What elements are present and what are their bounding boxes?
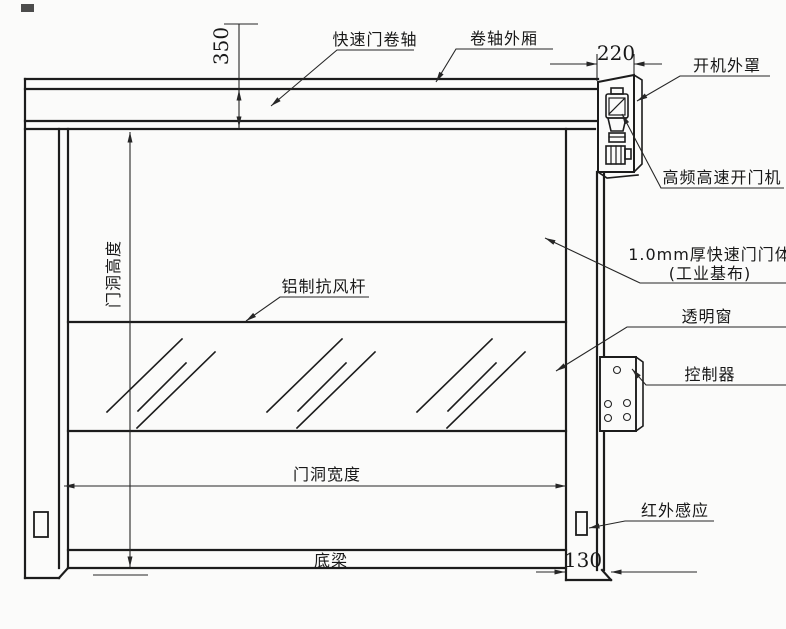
- leader-ir-sensor: [589, 521, 714, 528]
- label-door-width: 门洞宽度: [293, 465, 361, 484]
- dim-text-130: 130: [564, 548, 602, 572]
- label-door-body-line1: 1.0mm厚快速门门体: [628, 245, 786, 264]
- drawing-canvas: 快速门卷轴 卷轴外厢 开机外罩 高频高速开门机 1.0mm厚快速门门体 (工业基…: [0, 0, 786, 629]
- leader-wind-bar: [246, 297, 369, 321]
- leader-machine-cover: [637, 76, 770, 101]
- label-roller-shaft: 快速门卷轴: [332, 30, 417, 49]
- transparent-window-hatching: [107, 339, 525, 428]
- dim-text-220: 220: [597, 41, 635, 65]
- controller-box: [600, 357, 643, 431]
- door-frame-structure: [25, 79, 611, 580]
- scan-artifact: [21, 4, 34, 12]
- door-technical-drawing: 快速门卷轴 卷轴外厢 开机外罩 高频高速开门机 1.0mm厚快速门门体 (工业基…: [0, 0, 786, 629]
- dim-text-350: 350: [209, 27, 233, 65]
- label-door-opener: 高频高速开门机: [662, 168, 781, 187]
- label-roller-box: 卷轴外厢: [470, 29, 538, 48]
- machine-cover-housing: [598, 75, 642, 178]
- infrared-sensor-left: [34, 512, 48, 537]
- label-window: 透明窗: [681, 307, 732, 326]
- label-ir-sensor: 红外感应: [641, 501, 709, 520]
- label-machine-cover: 开机外罩: [693, 56, 761, 75]
- leader-window: [556, 327, 786, 371]
- infrared-sensor-right: [576, 512, 587, 535]
- label-bottom-beam: 底梁: [314, 551, 348, 570]
- label-door-body-line2: (工业基布): [669, 264, 752, 283]
- label-door-height: 门洞高度: [104, 240, 123, 308]
- label-wind-bar: 铝制抗风杆: [281, 277, 366, 296]
- dimension-door-height: [93, 132, 148, 575]
- leader-roller-box: [436, 49, 553, 82]
- label-controller: 控制器: [684, 365, 735, 384]
